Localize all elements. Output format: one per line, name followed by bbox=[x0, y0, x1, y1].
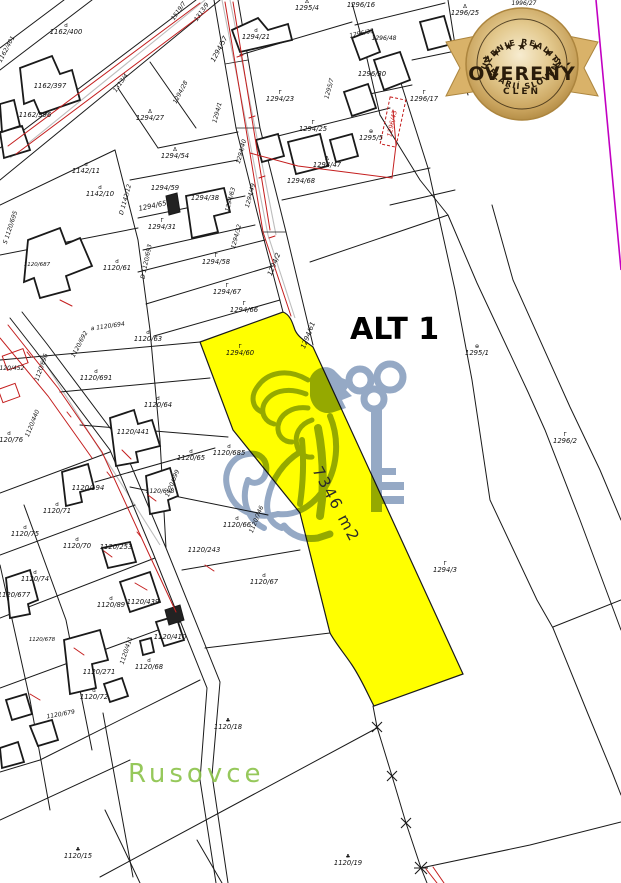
landuse-symbol-icon: d bbox=[55, 502, 59, 508]
parcel-label: 1294/38 bbox=[191, 194, 220, 202]
parcel-label: 1294/1 bbox=[211, 102, 223, 124]
parcel-label: 1120/687 bbox=[24, 262, 51, 268]
landuse-symbol-icon: d bbox=[64, 23, 68, 29]
parcel-label: 1294/25 bbox=[299, 125, 327, 133]
landuse-symbol-icon: Δ bbox=[173, 147, 177, 153]
landuse-symbol-icon: Δ bbox=[305, 0, 309, 5]
landuse-symbol-icon: d bbox=[147, 658, 151, 664]
parcel-label: 1142/11 bbox=[72, 167, 100, 175]
parcel-label: 1120/65 bbox=[177, 454, 205, 462]
landuse-symbol-icon: ♣ bbox=[226, 718, 231, 724]
parcel-label: 1296/43 bbox=[385, 110, 398, 138]
parcel-label: 1120/67 bbox=[250, 578, 279, 586]
landuse-symbol-icon: d bbox=[227, 444, 231, 450]
parcel-label: 1120/64 bbox=[144, 401, 172, 409]
parcel-label: 1120/75 bbox=[11, 530, 39, 538]
parcel-label: 1996/27 bbox=[512, 0, 537, 7]
parcel-label: 1120/243 bbox=[188, 546, 221, 554]
parcel-label: 1120/411 bbox=[119, 636, 135, 666]
parcel-label: 1294/67 bbox=[213, 288, 242, 296]
parcel-label: 1120/74 bbox=[21, 575, 49, 583]
landuse-symbol-icon: d bbox=[84, 162, 88, 168]
parcel-label: 1294/60 bbox=[226, 349, 254, 357]
parcel-label: 1120/70 bbox=[63, 542, 91, 550]
parcel-label: 1294/23 bbox=[266, 95, 294, 103]
landuse-symbol-icon: d bbox=[156, 396, 160, 402]
parcel-label: 1120/76 bbox=[0, 436, 24, 444]
parcel-label: a 1120/694 bbox=[90, 321, 125, 333]
parcel-label: 1120/692 bbox=[70, 330, 90, 359]
parcel-label: 1142/10 bbox=[86, 190, 114, 198]
badge-main-text: OVERENÝ bbox=[468, 61, 576, 85]
landuse-symbol-icon: d bbox=[33, 570, 37, 576]
parcel-label: 1295/1 bbox=[465, 349, 489, 357]
parcel-label: 1294/57 bbox=[209, 34, 230, 63]
parcel-label: 1294/3 bbox=[433, 566, 457, 574]
parcel-label: 1296/16 bbox=[347, 1, 376, 9]
parcel-label: 1294/27 bbox=[136, 114, 165, 122]
landuse-symbol-icon: d bbox=[254, 28, 258, 34]
parcel-label: S 1120/695 bbox=[2, 210, 19, 245]
parcel-label: 1120/253 bbox=[100, 543, 133, 551]
parcel-label: 1120/679 bbox=[46, 709, 76, 721]
parcel-label: 1120/440 bbox=[24, 409, 41, 438]
landuse-symbol-icon: d bbox=[23, 525, 27, 531]
landuse-symbol-icon: d bbox=[146, 330, 150, 336]
parcel-label: 1120/271 bbox=[83, 668, 116, 676]
parcel-label: 1120/441 bbox=[117, 428, 150, 436]
landuse-symbol-icon: d bbox=[262, 573, 266, 579]
parcel-label: 1294/31 bbox=[148, 223, 176, 231]
lion-head bbox=[310, 367, 352, 413]
parcel-label: 1296/30 bbox=[358, 70, 386, 78]
landuse-symbol-icon: d bbox=[92, 688, 96, 694]
parcel-label: 1120/685 bbox=[213, 449, 246, 457]
parcel-label: 1120/66 bbox=[223, 521, 252, 529]
parcel-label: 1294/66 bbox=[230, 306, 259, 314]
parcel-label: 1294/65 bbox=[138, 199, 167, 213]
landuse-symbol-icon: Δ bbox=[463, 4, 467, 10]
landuse-symbol-icon: ⊕ bbox=[369, 129, 374, 135]
parcel-label: 1120/61 bbox=[103, 264, 131, 272]
territory-boundary-magenta bbox=[596, 0, 621, 270]
landuse-symbol-icon: Δ bbox=[325, 156, 329, 162]
parcel-label: 1120/410 bbox=[154, 633, 187, 641]
parcel-label: 1313/9 bbox=[193, 1, 211, 22]
parcel-label: 1120/19 bbox=[334, 859, 362, 867]
badge-star-right: ★ bbox=[543, 46, 553, 59]
parcel-label: 1162/400 bbox=[50, 28, 83, 36]
parcel-label: 1294/40 bbox=[235, 138, 248, 164]
parcel-label: 1120/677 bbox=[0, 591, 31, 599]
landuse-symbol-icon: d bbox=[98, 185, 102, 191]
parcel-label: 1120/18 bbox=[214, 723, 243, 731]
place-name-label: Rusovce bbox=[128, 759, 265, 789]
landuse-symbol-icon: Δ bbox=[148, 109, 152, 115]
landuse-symbol-icon: d bbox=[94, 369, 98, 375]
parcel-label: 1120/89 bbox=[97, 601, 125, 609]
parcel-label: 1120/698 bbox=[146, 488, 175, 495]
parcel-label: 1162/397 bbox=[34, 82, 67, 90]
parcel-label: 1294/59 bbox=[151, 184, 179, 192]
parcel-label: D 1120/693 bbox=[139, 244, 153, 280]
badge-stars: ★ ★ ★ bbox=[504, 40, 541, 53]
parcel-label: 1120/71 bbox=[43, 507, 71, 515]
parcel-label: 1294/47 bbox=[313, 161, 342, 169]
parcel-label: 1295/4 bbox=[295, 4, 319, 12]
parcel-label: 1120/439 bbox=[127, 598, 160, 606]
landuse-symbol-icon: ⊕ bbox=[475, 344, 480, 350]
verified-member-badge: ZDRUŽENIE REALITNÝCH KANCELÁRIÍ SLOVENSK… bbox=[0, 0, 598, 120]
parcel-label: 1120/194 bbox=[72, 484, 105, 492]
cadastral-map: 1162/400d1162/4011162/3971162/3961313/41… bbox=[0, 0, 621, 883]
parcel-label: 1294/63 bbox=[224, 186, 237, 212]
parcel-label: 1296/17 bbox=[410, 95, 439, 103]
parcel-label: 1296/2 bbox=[553, 437, 577, 445]
landuse-symbol-icon: d bbox=[109, 596, 113, 602]
parcel-label: 1294/54 bbox=[161, 152, 189, 160]
parcel-label: 1120/691 bbox=[80, 374, 113, 382]
parcel-label: 1120/72 bbox=[80, 693, 108, 701]
map-canvas: 1162/400d1162/4011162/3971162/3961313/41… bbox=[0, 0, 621, 883]
badge-sub-text: ČLEN bbox=[503, 85, 541, 97]
landuse-symbol-icon: d bbox=[189, 449, 193, 455]
parcel-label: 1296/48 bbox=[372, 35, 397, 42]
parcel-label: 1296/25 bbox=[451, 9, 479, 17]
parcel-label: 1162/396 bbox=[19, 111, 52, 119]
parcel-label: 1120/452 bbox=[0, 365, 25, 372]
landuse-symbol-icon: ♣ bbox=[76, 847, 81, 853]
landuse-symbol-icon: d bbox=[75, 537, 79, 543]
parcel-label: 1120/15 bbox=[64, 852, 92, 860]
landuse-symbol-icon: d bbox=[7, 431, 11, 437]
parcel-label: 1295/7 bbox=[323, 77, 335, 99]
parcel-label: 1295/5 bbox=[359, 134, 383, 142]
alt1-annotation: ALT 1 bbox=[350, 312, 439, 347]
landuse-symbol-icon: d bbox=[115, 259, 119, 265]
survey-cross-markers bbox=[372, 722, 428, 874]
parcel-label: 1313/4 bbox=[112, 72, 130, 93]
parcel-label: 1294/58 bbox=[202, 258, 231, 266]
parcel-label: 1120/678 bbox=[29, 637, 56, 643]
parcel-label: 1294/68 bbox=[287, 177, 316, 185]
landuse-symbol-icon: ♣ bbox=[346, 854, 351, 860]
parcel-label: 1120/68 bbox=[135, 663, 164, 671]
landuse-symbol-icon: d bbox=[235, 516, 239, 522]
parcel-label: 1120/63 bbox=[134, 335, 162, 343]
parcel-label: 1294/21 bbox=[242, 33, 270, 41]
parcel-label: 1294/28 bbox=[172, 79, 190, 104]
parcel-label: 1294/61 bbox=[299, 321, 317, 350]
badge-star-left: ★ bbox=[491, 46, 501, 59]
